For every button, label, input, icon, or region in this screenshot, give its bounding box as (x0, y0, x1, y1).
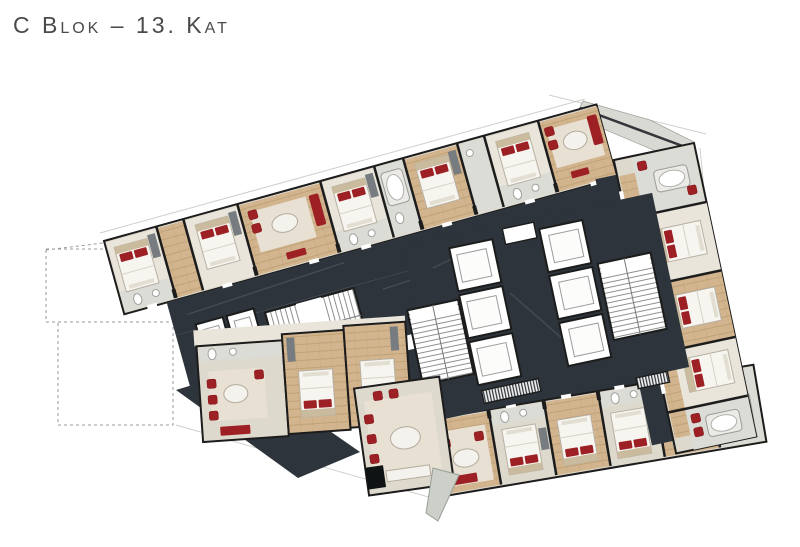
floor-plan (0, 0, 800, 547)
red-chair (209, 411, 219, 421)
elevator-car (477, 343, 512, 377)
elevator-car (559, 276, 594, 310)
elevator-car (457, 249, 492, 283)
red-chair (693, 427, 704, 438)
red-chair (373, 391, 383, 401)
closet (390, 326, 400, 350)
red-chair (364, 414, 374, 424)
red-chair (687, 185, 698, 196)
sink (229, 348, 236, 355)
bed (502, 424, 543, 475)
elevator-car (549, 229, 584, 263)
elevator-car (569, 323, 604, 357)
floor-plan-page: C Blok – 13. Kat (0, 0, 800, 547)
red-chair (369, 454, 379, 464)
red-chair (389, 389, 399, 399)
closet (286, 337, 296, 361)
red-chair (690, 413, 701, 424)
bed (298, 369, 335, 417)
red-chair (367, 434, 377, 444)
red-chair (637, 160, 648, 171)
bed (557, 415, 598, 466)
sink (519, 409, 527, 417)
wc (208, 348, 217, 360)
red-chair (207, 379, 217, 389)
red-chair (208, 395, 218, 405)
bed (611, 408, 652, 459)
red-chair (474, 431, 484, 441)
dark-doorway (365, 465, 386, 489)
elevator-car (467, 296, 502, 330)
red-chair (254, 370, 264, 380)
sink (630, 390, 638, 398)
